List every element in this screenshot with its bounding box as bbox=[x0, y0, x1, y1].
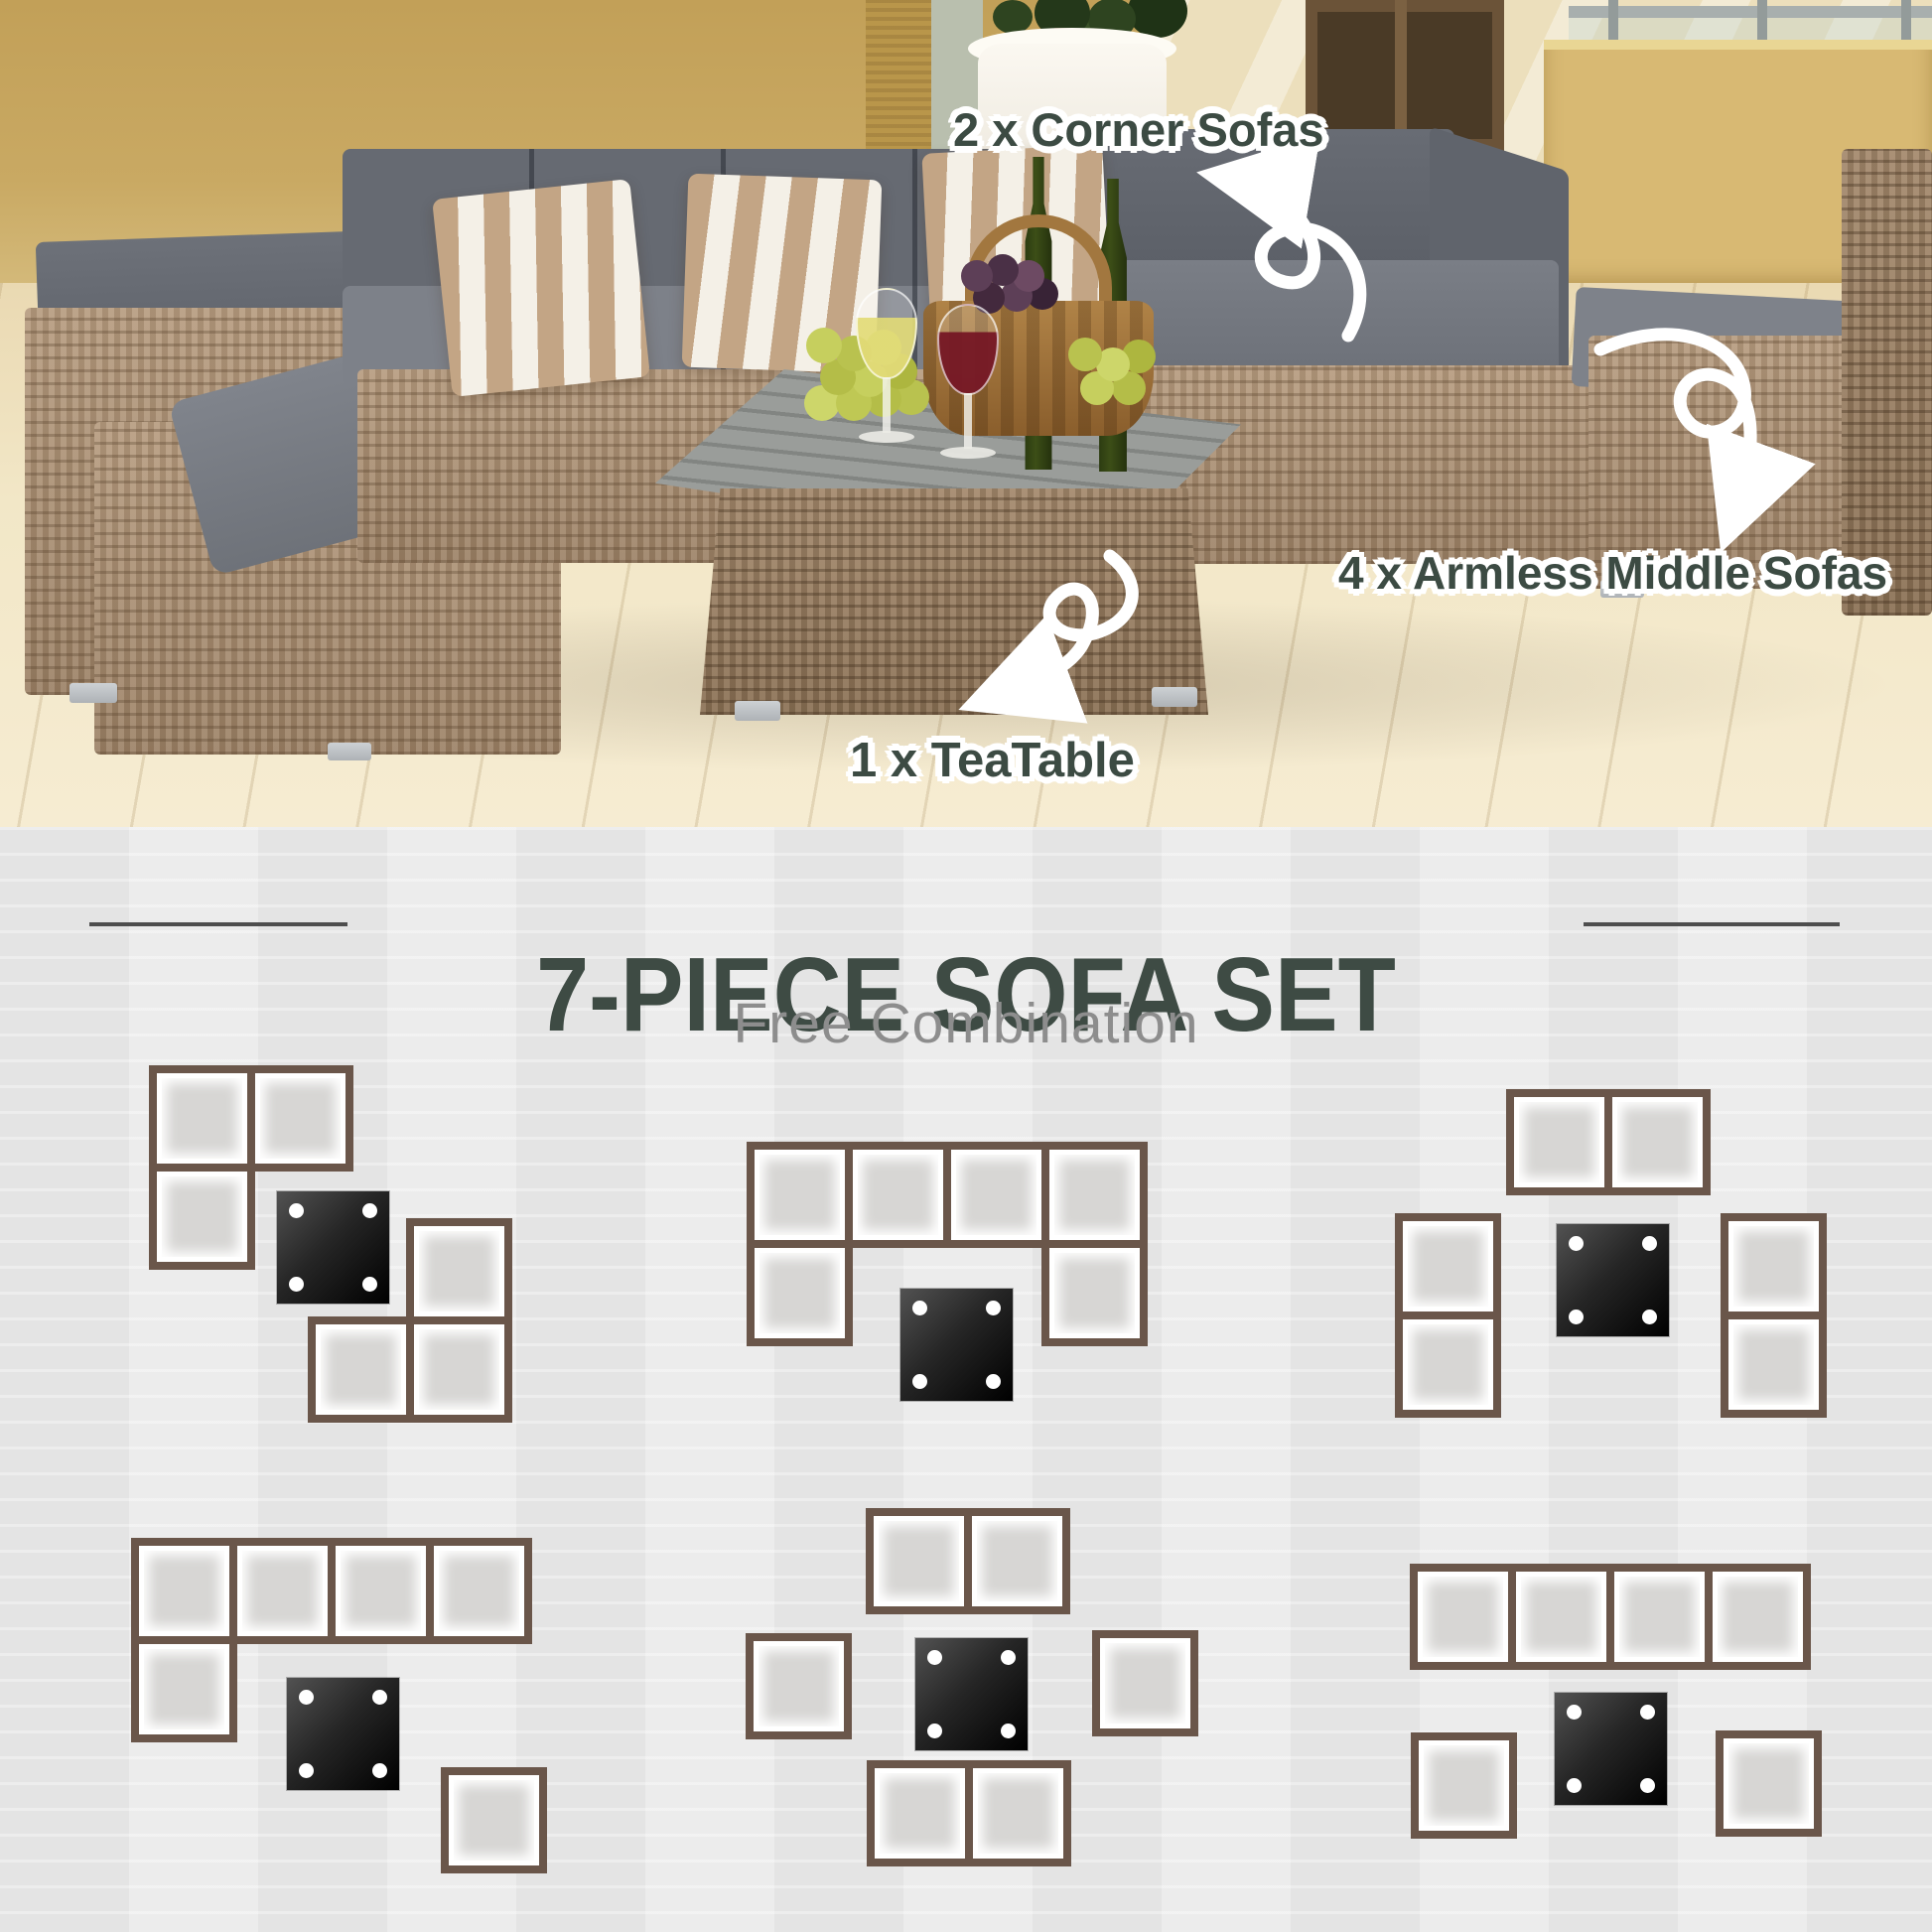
sofa-seat bbox=[131, 1538, 237, 1644]
table-corner-dot bbox=[927, 1650, 942, 1665]
sofa-seat bbox=[845, 1142, 951, 1248]
table-corner-dot bbox=[1569, 1310, 1584, 1324]
sofa-seat bbox=[1395, 1213, 1501, 1319]
sofa-seat bbox=[1410, 1564, 1516, 1670]
sofa-seat bbox=[406, 1218, 512, 1324]
sofa-seat bbox=[746, 1633, 852, 1739]
tea-table-icon bbox=[277, 1191, 389, 1304]
sofa-seat bbox=[964, 1508, 1070, 1614]
tea-table-icon bbox=[287, 1678, 399, 1790]
sofa-seat bbox=[867, 1760, 973, 1866]
sofa-seat bbox=[747, 1240, 853, 1346]
seat-cushion bbox=[439, 1551, 519, 1631]
combination-diagrams bbox=[0, 0, 1932, 1932]
sofa-seat bbox=[1721, 1213, 1827, 1319]
table-corner-dot bbox=[1640, 1778, 1655, 1793]
table-corner-dot bbox=[289, 1277, 304, 1292]
table-corner-dot bbox=[1640, 1705, 1655, 1720]
sofa-seat bbox=[943, 1142, 1049, 1248]
table-corner-dot bbox=[372, 1763, 387, 1778]
seat-cushion bbox=[759, 1646, 839, 1726]
sofa-seat bbox=[1606, 1564, 1713, 1670]
table-corner-dot bbox=[362, 1277, 377, 1292]
seat-cushion bbox=[260, 1078, 341, 1159]
tea-table-icon bbox=[915, 1638, 1028, 1750]
sofa-seat bbox=[1508, 1564, 1614, 1670]
seat-cushion bbox=[1519, 1102, 1599, 1182]
table-corner-dot bbox=[1567, 1778, 1582, 1793]
table-corner-dot bbox=[299, 1763, 314, 1778]
seat-cushion bbox=[1408, 1226, 1488, 1307]
sofa-seat bbox=[1041, 1240, 1148, 1346]
seat-cushion bbox=[858, 1155, 938, 1235]
sofa-seat bbox=[149, 1065, 255, 1172]
table-corner-dot bbox=[362, 1203, 377, 1218]
sofa-seat bbox=[229, 1538, 336, 1644]
table-corner-dot bbox=[927, 1724, 942, 1738]
seat-cushion bbox=[1718, 1577, 1798, 1657]
seat-cushion bbox=[1733, 1226, 1814, 1307]
sofa-seat bbox=[1705, 1564, 1811, 1670]
product-infographic: 2 x Corner Sofas 4 x Armless Middle Sofa… bbox=[0, 0, 1932, 1932]
sofa-seat bbox=[328, 1538, 434, 1644]
sofa-seat bbox=[131, 1636, 237, 1742]
sofa-seat bbox=[866, 1508, 972, 1614]
sofa-seat bbox=[1395, 1311, 1501, 1418]
sofa-seat bbox=[1721, 1311, 1827, 1418]
sofa-seat bbox=[247, 1065, 353, 1172]
seat-cushion bbox=[1728, 1743, 1809, 1824]
seat-cushion bbox=[1105, 1643, 1185, 1724]
tea-table-icon bbox=[1555, 1693, 1667, 1805]
sofa-seat bbox=[747, 1142, 853, 1248]
seat-cushion bbox=[242, 1551, 323, 1631]
seat-cushion bbox=[162, 1176, 242, 1257]
table-corner-dot bbox=[1567, 1705, 1582, 1720]
table-corner-dot bbox=[986, 1301, 1001, 1315]
seat-cushion bbox=[1054, 1155, 1135, 1235]
seat-cushion bbox=[759, 1253, 840, 1333]
seat-cushion bbox=[162, 1078, 242, 1159]
seat-cushion bbox=[1617, 1102, 1698, 1182]
table-corner-dot bbox=[1569, 1236, 1584, 1251]
seat-cushion bbox=[144, 1649, 224, 1729]
sofa-seat bbox=[965, 1760, 1071, 1866]
sofa-seat bbox=[1604, 1089, 1711, 1195]
sofa-seat bbox=[406, 1316, 512, 1423]
seat-cushion bbox=[341, 1551, 421, 1631]
seat-cushion bbox=[1424, 1745, 1504, 1826]
seat-cushion bbox=[1423, 1577, 1503, 1657]
seat-cushion bbox=[880, 1773, 960, 1854]
seat-cushion bbox=[419, 1329, 499, 1410]
table-corner-dot bbox=[1001, 1724, 1016, 1738]
tea-table-icon bbox=[1557, 1224, 1669, 1336]
seat-cushion bbox=[1521, 1577, 1601, 1657]
table-corner-dot bbox=[372, 1690, 387, 1705]
seat-cushion bbox=[956, 1155, 1036, 1235]
sofa-seat bbox=[1041, 1142, 1148, 1248]
sofa-seat bbox=[1716, 1730, 1822, 1837]
seat-cushion bbox=[321, 1329, 401, 1410]
tea-table-icon bbox=[900, 1289, 1013, 1401]
seat-cushion bbox=[1054, 1253, 1135, 1333]
table-corner-dot bbox=[1642, 1236, 1657, 1251]
seat-cushion bbox=[1619, 1577, 1700, 1657]
table-corner-dot bbox=[299, 1690, 314, 1705]
table-corner-dot bbox=[986, 1374, 1001, 1389]
sofa-seat bbox=[1506, 1089, 1612, 1195]
seat-cushion bbox=[1733, 1324, 1814, 1405]
table-corner-dot bbox=[289, 1203, 304, 1218]
sofa-seat bbox=[308, 1316, 414, 1423]
sofa-seat bbox=[441, 1767, 547, 1873]
seat-cushion bbox=[879, 1521, 959, 1601]
seat-cushion bbox=[144, 1551, 224, 1631]
seat-cushion bbox=[1408, 1324, 1488, 1405]
seat-cushion bbox=[977, 1521, 1057, 1601]
seat-cushion bbox=[978, 1773, 1058, 1854]
table-corner-dot bbox=[912, 1301, 927, 1315]
seat-cushion bbox=[759, 1155, 840, 1235]
table-corner-dot bbox=[1001, 1650, 1016, 1665]
sofa-seat bbox=[1411, 1732, 1517, 1839]
table-corner-dot bbox=[1642, 1310, 1657, 1324]
seat-cushion bbox=[454, 1780, 534, 1861]
table-corner-dot bbox=[912, 1374, 927, 1389]
sofa-seat bbox=[1092, 1630, 1198, 1736]
sofa-seat bbox=[426, 1538, 532, 1644]
sofa-seat bbox=[149, 1164, 255, 1270]
seat-cushion bbox=[419, 1231, 499, 1311]
